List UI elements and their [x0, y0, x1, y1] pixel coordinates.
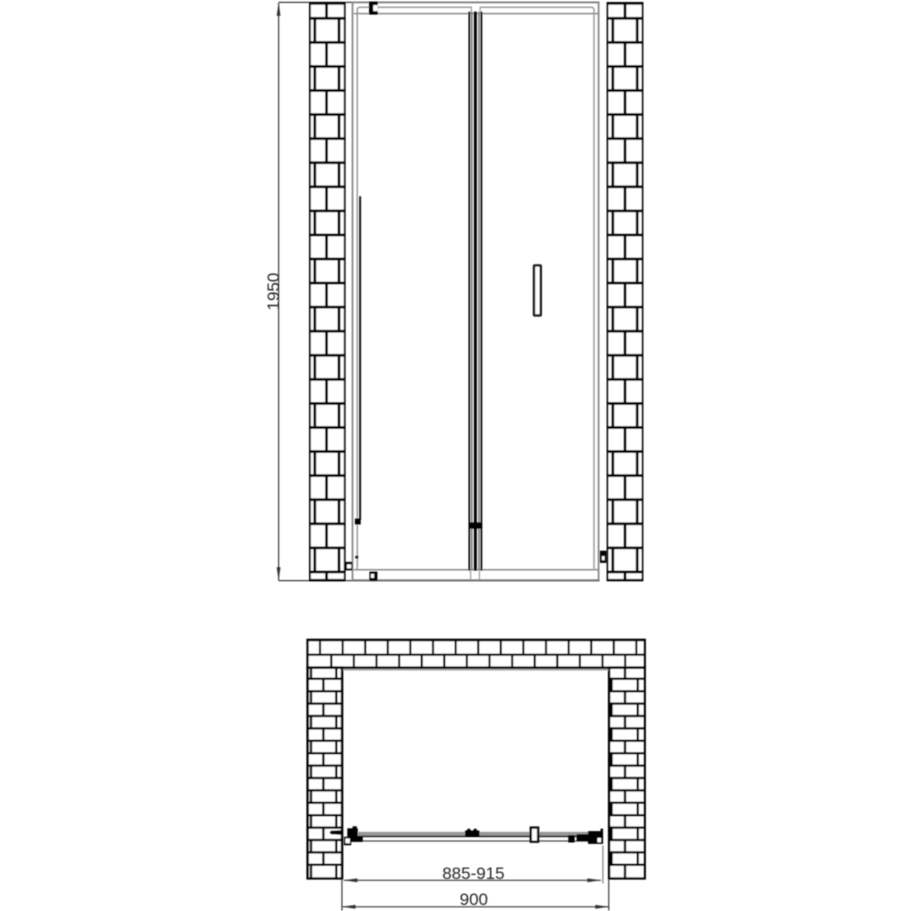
svg-text:900: 900	[460, 890, 488, 909]
svg-text:885-915: 885-915	[442, 864, 504, 883]
svg-text:1950: 1950	[264, 273, 283, 311]
